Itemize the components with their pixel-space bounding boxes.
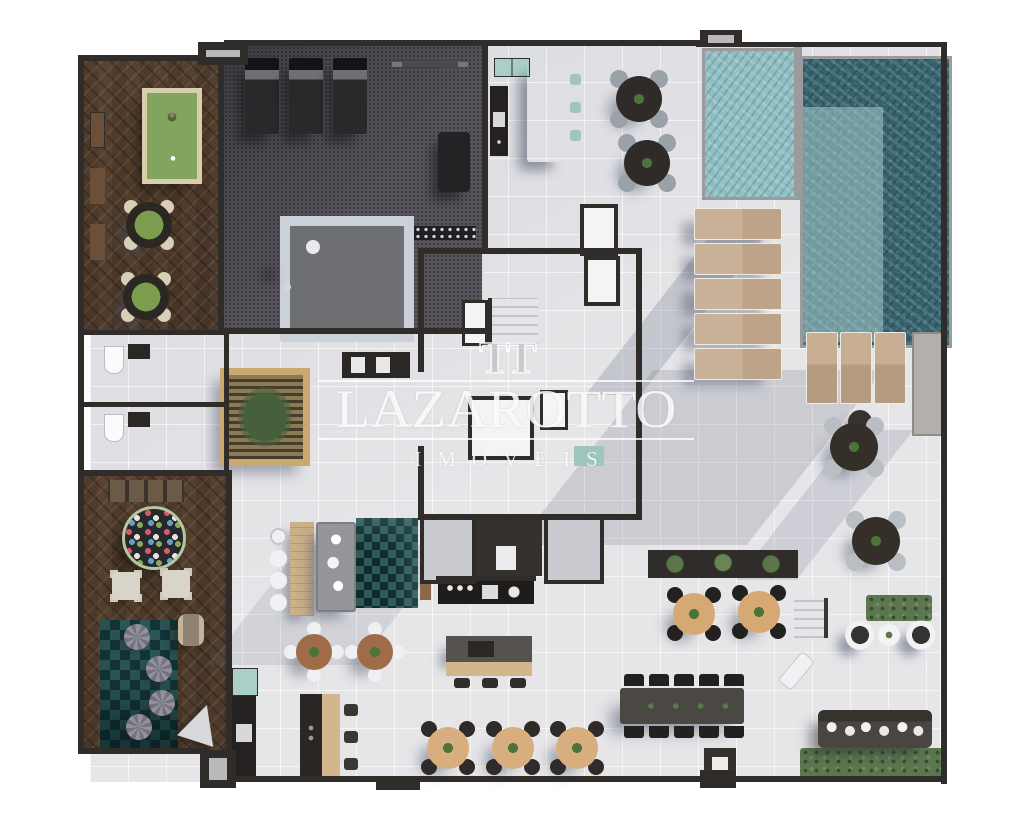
treadmill	[245, 58, 279, 134]
kitchen-island	[300, 694, 340, 780]
watermark-logo-tt: TT	[318, 338, 694, 378]
sun-lounger	[694, 243, 782, 275]
kitchen-wall	[436, 576, 536, 581]
dining-set-beige	[738, 591, 780, 633]
concrete-planter-wall	[912, 332, 944, 436]
wall-tab	[376, 778, 420, 790]
kids-armchair	[178, 614, 204, 646]
gym-bottom-wall	[218, 328, 488, 334]
elevator-shaft	[584, 256, 620, 306]
core-wall	[418, 514, 642, 520]
wall-tab	[700, 770, 736, 788]
wall-tab	[198, 42, 248, 65]
wall-counter	[490, 86, 508, 156]
long-table-chairs-bottom	[624, 726, 644, 738]
island-stools	[454, 678, 470, 688]
cable-machine	[438, 132, 470, 192]
outdoor-side-table	[878, 624, 900, 646]
dining-set-wood	[357, 634, 393, 670]
terrace-steps	[794, 598, 828, 638]
kids-right-wall	[226, 470, 232, 752]
palm-planter	[648, 550, 798, 578]
core-dark-room	[470, 520, 542, 576]
card-table	[126, 202, 172, 248]
treadmill	[289, 58, 323, 134]
wall-tab	[200, 750, 236, 788]
pool-shallow-ledge	[803, 107, 883, 342]
dining-set-beige	[427, 727, 469, 769]
main-pool	[800, 56, 952, 348]
sun-lounger	[694, 313, 782, 345]
wet-deck-lounger	[840, 332, 872, 404]
wet-deck-lounger	[806, 332, 838, 404]
wall-shelf	[90, 112, 105, 148]
outer-wall-bottom	[236, 776, 947, 782]
toilet	[104, 414, 124, 442]
bar-counter	[527, 60, 567, 162]
card-table	[123, 274, 169, 320]
dining-set-beige	[556, 727, 598, 769]
ball-pit	[122, 506, 186, 570]
outer-wall-top	[224, 40, 702, 46]
dining-set-dark	[624, 140, 670, 186]
billiards-table	[142, 88, 202, 184]
games-bottom-wall	[84, 330, 224, 335]
pouf	[126, 714, 152, 740]
exercise-ball	[306, 240, 320, 254]
long-table-chairs-top	[624, 674, 644, 686]
outer-wall-bottom-left	[78, 748, 208, 754]
tall-bar-table	[290, 522, 314, 616]
sun-lounger	[694, 208, 782, 240]
kids-table	[112, 572, 140, 600]
planter-hedge	[866, 595, 932, 621]
restroom-wall	[84, 402, 228, 407]
terrace-dining-set	[830, 423, 878, 471]
island-wood-bar	[446, 662, 532, 676]
pool-divider	[794, 46, 802, 196]
dining-set-beige	[673, 593, 715, 635]
terrace-dining-set	[852, 517, 900, 565]
outdoor-sofa	[818, 710, 932, 748]
treadmill	[333, 58, 367, 134]
exercise-mat	[280, 216, 414, 342]
outdoor-armchair	[845, 620, 875, 650]
core-wall	[418, 248, 642, 254]
long-dining-table	[620, 688, 744, 724]
watermark: TT LAZAROTTO IMÓVEIS	[318, 338, 694, 472]
teal-cabinet	[494, 58, 530, 77]
outdoor-armchair	[906, 620, 936, 650]
bar-stools-white	[270, 528, 287, 545]
gym-lounge-wall	[482, 42, 488, 252]
outer-wall-right	[941, 42, 947, 784]
restroom-wall	[224, 332, 229, 476]
pouf	[124, 624, 150, 650]
teal-cabinet	[232, 668, 258, 696]
pouf	[146, 656, 172, 682]
bar-stools	[570, 74, 581, 85]
kids-pool	[702, 48, 800, 200]
outer-wall-left	[78, 330, 84, 754]
kitchen-island-dark	[446, 636, 532, 662]
kids-top-wall	[84, 470, 229, 476]
dining-set-dark	[616, 76, 662, 122]
checkered-rug	[356, 518, 418, 608]
lounge-sofa	[316, 522, 356, 612]
pouf	[149, 690, 175, 716]
sun-lounger	[694, 278, 782, 310]
dumbbell-rack	[414, 226, 476, 240]
island-stools	[344, 704, 358, 716]
watermark-subtitle: IMÓVEIS	[318, 447, 694, 472]
outer-wall-left	[78, 55, 84, 335]
wall-tab	[700, 30, 742, 46]
floor-plan-render: TT LAZAROTTO IMÓVEIS	[0, 0, 1024, 819]
vanity	[128, 412, 150, 427]
planter-bench-tree	[220, 368, 310, 466]
shaft-room	[420, 516, 476, 584]
toilet	[104, 346, 124, 374]
games-gym-wall	[218, 55, 224, 335]
kids-table	[162, 570, 190, 598]
toy-shelf	[108, 480, 184, 502]
dining-set-wood	[296, 634, 332, 670]
barbell-rack	[392, 62, 468, 67]
wet-deck-lounger	[874, 332, 906, 404]
watermark-title: LAZAROTTO	[318, 385, 694, 434]
vanity	[128, 344, 150, 359]
shaft-room	[544, 514, 604, 584]
dining-set-beige	[492, 727, 534, 769]
sun-lounger	[694, 348, 782, 380]
